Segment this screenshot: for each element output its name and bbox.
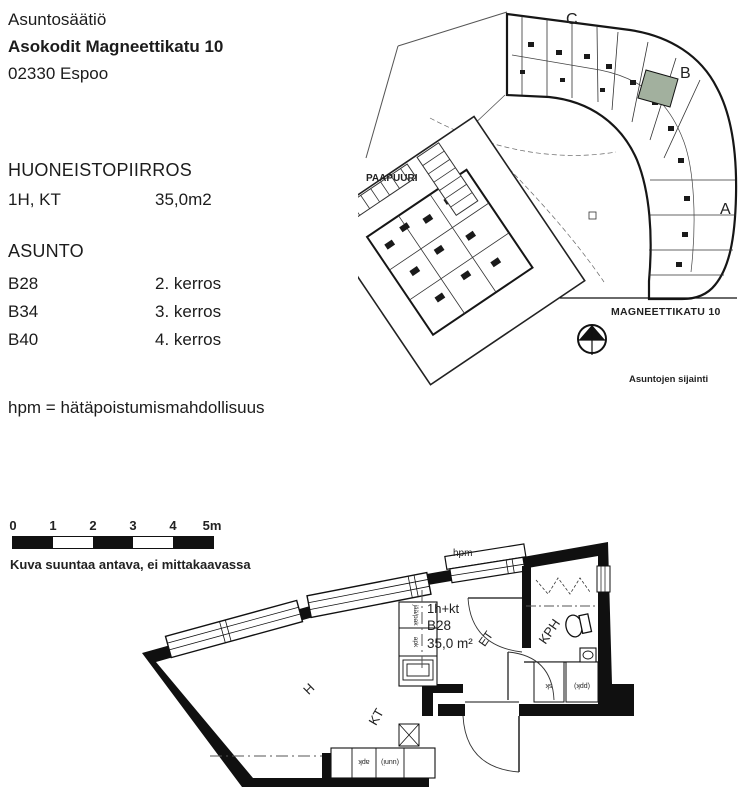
apartment-floor: 4. kerros bbox=[155, 326, 221, 354]
courtyard-structure bbox=[589, 212, 596, 219]
address: 02330 Espoo bbox=[8, 60, 223, 87]
scale-tick: 3 bbox=[129, 518, 136, 533]
bathroom-window bbox=[597, 566, 610, 592]
apartment-id: B34 bbox=[8, 298, 155, 326]
scale-tick: 5m bbox=[203, 518, 222, 533]
site-caption: Asuntojen sijainti bbox=[629, 374, 708, 385]
kitchen-wall-stub bbox=[422, 683, 433, 716]
apartment-row: B28 2. kerros bbox=[8, 270, 221, 298]
legend-note: hpm = hätäpoistumismahdollisuus bbox=[8, 398, 265, 418]
oven-label: (uuni) bbox=[381, 758, 399, 765]
apartment-floor: 2. kerros bbox=[155, 270, 221, 298]
scale-tick: 4 bbox=[169, 518, 176, 533]
fridge-label: jää/pak bbox=[412, 604, 419, 627]
scale-segment bbox=[53, 537, 93, 548]
wing-label-c: C bbox=[566, 11, 578, 28]
unit-layout: 1H, KT bbox=[8, 190, 155, 210]
bathroom-wall bbox=[522, 566, 531, 648]
apartment-id: B28 bbox=[8, 270, 155, 298]
entrance-door bbox=[463, 700, 519, 772]
apartment-floor-plan: sk (ppk) jää/pak apk bbox=[138, 540, 643, 798]
adjacent-building-label: PAAPUURI bbox=[366, 173, 418, 184]
apartment-row: B34 3. kerros bbox=[8, 298, 221, 326]
apartment-id: B40 bbox=[8, 326, 155, 354]
scale-tick: 1 bbox=[49, 518, 56, 533]
apartment-floor: 3. kerros bbox=[155, 298, 221, 326]
wing-label-a: A bbox=[720, 201, 731, 218]
hpm-label: hpm bbox=[453, 548, 472, 559]
unit-area: 35,0m2 bbox=[155, 190, 221, 210]
wing-label-b: B bbox=[680, 65, 691, 82]
unit-summary-row: 1H, KT 35,0m2 bbox=[8, 190, 221, 210]
stove-icon bbox=[399, 724, 419, 746]
north-arrow-icon bbox=[578, 325, 606, 355]
scale-tick: 0 bbox=[9, 518, 16, 533]
scale-segment bbox=[93, 537, 133, 548]
scale-tick: 2 bbox=[89, 518, 96, 533]
organization-name: Asuntosäätiö bbox=[8, 6, 223, 33]
street-label: MAGNEETTIKATU 10 bbox=[611, 306, 721, 318]
unit-area-label: 35,0 m² bbox=[427, 636, 473, 651]
counter-label: apk bbox=[358, 758, 370, 765]
apartment-list: B28 2. kerros B34 3. kerros B40 4. kerro… bbox=[8, 270, 221, 354]
bathroom-closets: sk (ppk) bbox=[524, 662, 598, 702]
unit-type-label: 1h+kt bbox=[427, 601, 460, 616]
adjacent-building bbox=[358, 117, 585, 385]
unit-id-label: B28 bbox=[427, 618, 451, 633]
apartments-title: ASUNTO bbox=[8, 241, 221, 262]
drawing-title: HUONEISTOPIIRROS bbox=[8, 160, 221, 181]
scale-segment bbox=[13, 537, 53, 548]
document-header: Asuntosäätiö Asokodit Magneettikatu 10 0… bbox=[8, 6, 223, 87]
site-plan: C B A MAGNEETTIKATU 10 Asuntojen sijaint… bbox=[358, 2, 747, 398]
dishwasher-label: apk bbox=[412, 637, 419, 648]
sink-icon bbox=[580, 648, 596, 662]
document-title: Asokodit Magneettikatu 10 bbox=[8, 33, 223, 60]
kitchen-lower-counter: apk (uuni) bbox=[331, 748, 435, 778]
counter-wall-stub bbox=[322, 753, 331, 778]
unit-info-section: HUONEISTOPIIRROS 1H, KT 35,0m2 ASUNTO B2… bbox=[8, 160, 221, 354]
apartment-row: B40 4. kerros bbox=[8, 326, 221, 354]
washer-label: (ppk) bbox=[574, 682, 590, 689]
